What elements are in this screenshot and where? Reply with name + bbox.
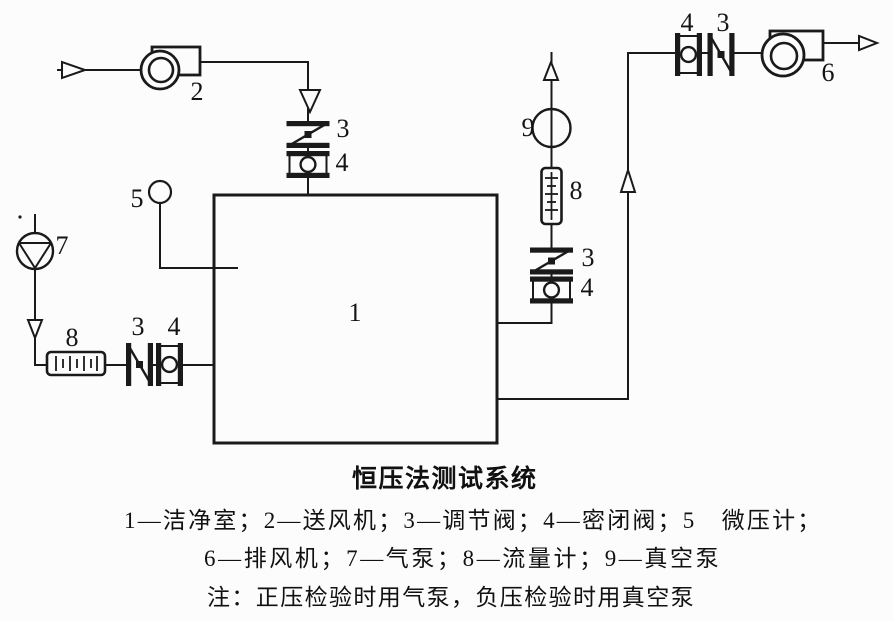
label-vac-reg-valve: 3 xyxy=(582,245,595,271)
inlet-arrow-icon xyxy=(62,62,85,78)
label-pump-flow-meter: 8 xyxy=(66,325,79,351)
label-supply-fan: 2 xyxy=(191,79,204,105)
figure-title: 恒压法测试系统 xyxy=(352,459,538,495)
label-vacuum-pump: 9 xyxy=(522,115,535,141)
label-exhaust-fan: 6 xyxy=(822,60,835,86)
label-vac-flow-meter: 8 xyxy=(570,178,583,204)
label-pump-reg-valve: 3 xyxy=(132,314,145,340)
exhaust-fan-symbol xyxy=(762,31,860,76)
label-pump-seal-valve: 4 xyxy=(168,314,181,340)
supply-funnel-icon xyxy=(300,90,320,112)
exhaust-riser-pipe xyxy=(497,53,775,399)
vacuum-sealed-valve-symbol xyxy=(530,277,573,304)
air-pump-symbol xyxy=(17,233,53,269)
vacuum-regulating-valve-symbol xyxy=(530,248,573,275)
pump-regulating-valve-symbol xyxy=(126,343,153,386)
label-vac-seal-valve: 4 xyxy=(581,275,594,301)
label-exhaust-reg-valve: 3 xyxy=(717,10,730,36)
vacuum-flow-meter-symbol xyxy=(542,168,562,224)
label-air-pump: 7 xyxy=(56,233,69,259)
supply-sealed-valve-symbol xyxy=(287,151,330,178)
exhaust-regulating-valve-symbol xyxy=(708,33,735,76)
exhaust-sealed-valve-symbol xyxy=(675,33,702,76)
vacuum-outlet-arrow-icon xyxy=(544,62,558,80)
label-supply-reg-valve: 3 xyxy=(337,116,350,142)
supply-regulating-valve-symbol xyxy=(287,121,330,148)
label-micro-manometer: 5 xyxy=(131,186,144,212)
diagram-canvas: 1 2 3 4 5 6 7 8 3 4 8 3 4 9 4 3 恒压法测试系统 … xyxy=(0,0,894,621)
label-exhaust-seal-valve: 4 xyxy=(681,10,694,36)
riser-arrow-icon xyxy=(621,170,635,192)
air-pump-arrow-icon xyxy=(28,320,42,338)
exhaust-outlet-arrow-icon xyxy=(859,36,877,50)
label-clean-room: 1 xyxy=(349,300,362,326)
legend-line-2: 6—排风机；7—气泵；8—流量计；9—真空泵 xyxy=(204,539,721,573)
pump-sealed-valve-symbol xyxy=(156,343,183,386)
label-supply-seal-valve: 4 xyxy=(336,150,349,176)
scan-speck xyxy=(18,215,21,218)
figure-note: 注：正压检验时用气泵，负压检验时用真空泵 xyxy=(207,578,695,612)
legend-line-1: 1—洁净室；2—送风机；3—调节阀；4—密闭阀；5 微压计； xyxy=(124,501,823,535)
pump-flow-meter-symbol xyxy=(47,352,105,375)
micro-manometer-symbol xyxy=(149,181,171,203)
air-pump-pipe xyxy=(35,269,214,365)
